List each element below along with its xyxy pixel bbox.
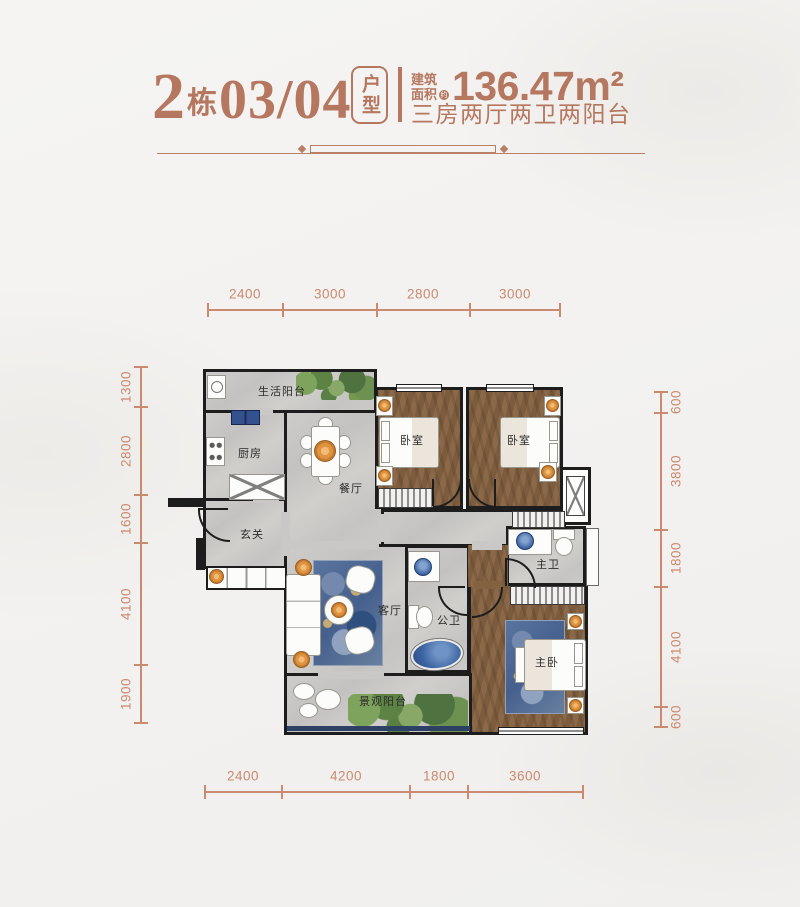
dim-tick [469, 303, 471, 317]
side-table [295, 559, 312, 576]
balcony-stone [315, 689, 341, 710]
dim-label: 600 [669, 390, 684, 414]
foyer-plant-icon [209, 569, 224, 584]
decor-diamond-left [298, 145, 306, 153]
toilet-icon [416, 606, 433, 628]
building-unit: 栋 [187, 78, 217, 122]
pillow [549, 443, 558, 463]
dim-tick [654, 412, 668, 414]
room-label-dining: 餐厅 [339, 480, 363, 496]
layout-summary: 三房两厅两卫两阳台 [411, 103, 632, 126]
dim-label: 1600 [119, 503, 134, 535]
dim-label: 600 [669, 705, 684, 729]
kitchen-appliance-icon [231, 410, 260, 425]
dining-table-decor [314, 440, 336, 462]
kitchen-cabinet-icon [229, 474, 285, 500]
public-bath-door-leaf [438, 586, 465, 588]
dim-tick [134, 406, 148, 408]
dim-label: 2400 [227, 769, 259, 784]
dim-tick [134, 722, 148, 724]
sink-icon [414, 558, 432, 576]
dim-label: 2400 [229, 287, 261, 302]
type-badge-label: 户型 [356, 74, 383, 116]
dim-tick [204, 785, 206, 799]
master-bath-door-leaf [505, 558, 507, 586]
opening [378, 514, 390, 542]
room-label-kitchen: 厨房 [238, 445, 262, 461]
room-label-master-bathroom: 主卫 [536, 556, 560, 572]
plants-icon [296, 372, 374, 400]
wardrobe [378, 488, 434, 508]
stove-icon [206, 437, 225, 466]
dim-label: 3800 [669, 455, 684, 487]
pillow [574, 643, 583, 664]
opening [472, 541, 502, 550]
area-approx-mark: 约 [439, 90, 449, 100]
bedroom-left-window [396, 384, 442, 392]
nightstand-plant-icon [378, 469, 391, 482]
master-bedroom-window [498, 727, 584, 735]
room-label-foyer: 玄关 [240, 526, 264, 542]
dim-tick [654, 726, 668, 728]
dim-tick [207, 303, 209, 317]
ac-ledge [586, 528, 599, 586]
dim-tick [654, 391, 668, 393]
dim-tick [582, 785, 584, 799]
dim-label: 4100 [669, 631, 684, 663]
decor-line [157, 153, 645, 154]
pillow [574, 666, 583, 687]
area-label: 建筑面积 [411, 72, 439, 103]
toilet-icon [555, 537, 573, 556]
washer-icon [207, 375, 226, 399]
dim-label: 3600 [509, 769, 541, 784]
dim-label: 3000 [499, 287, 531, 302]
nightstand-plant-icon [541, 465, 555, 479]
dim-tick [467, 785, 469, 799]
dim-tick [134, 494, 148, 496]
dim-label: 3000 [314, 287, 346, 302]
page-title: 2 栋 03/04 [152, 62, 352, 124]
dim-top-line [208, 309, 560, 311]
dim-right-line [660, 392, 662, 727]
dim-tick [654, 529, 668, 531]
coffee-table-decor [331, 602, 347, 618]
dim-tick [281, 785, 283, 799]
dim-tick [376, 303, 378, 317]
bedroom-left-door-leaf [432, 479, 434, 506]
room-label-public-bathroom: 公卫 [437, 612, 461, 628]
bedroom-right-door-leaf [494, 479, 496, 506]
dim-label: 4200 [330, 769, 362, 784]
balcony-stone [299, 703, 318, 718]
dim-bottom-line [205, 791, 583, 793]
header-divider [398, 67, 402, 122]
dim-tick [134, 542, 148, 544]
balcony-stone [293, 683, 315, 700]
dim-label: 1900 [119, 678, 134, 710]
floorplan-page: 2 栋 03/04 户型 建筑面积 约 136.47m² 三房两厅两卫两阳台 2… [0, 0, 800, 907]
type-badge: 户型 [351, 66, 388, 124]
dim-label: 2800 [119, 435, 134, 467]
opening [318, 671, 384, 679]
entry-wall [196, 538, 205, 570]
dim-tick [559, 303, 561, 317]
dim-tick [409, 785, 411, 799]
pillow [381, 443, 390, 463]
nightstand-plant-icon [569, 615, 582, 628]
bed-bench [515, 647, 525, 683]
pillow [381, 421, 390, 441]
sofa [286, 574, 321, 656]
room-label-bedroom-right: 卧室 [507, 432, 531, 448]
entry-door-leaf [198, 508, 228, 510]
dim-tick [134, 664, 148, 666]
wardrobe [510, 586, 585, 605]
dim-label: 2800 [407, 287, 439, 302]
dim-tick [654, 586, 668, 588]
shaft-x-icon [566, 476, 585, 516]
opening [287, 541, 379, 550]
side-table [293, 651, 310, 668]
decor-box [310, 145, 496, 153]
room-label-life-balcony: 生活阳台 [258, 383, 306, 399]
decor-diamond-right [500, 145, 508, 153]
room-label-view-balcony: 景观阳台 [359, 693, 407, 709]
unit-numbers: 03/04 [219, 78, 352, 124]
dim-label: 1800 [669, 542, 684, 574]
balcony-railing [287, 726, 470, 731]
dim-tick [134, 366, 148, 368]
pillow [549, 421, 558, 441]
dim-left-line [140, 367, 142, 723]
room-label-master-bedroom: 主卧 [535, 654, 559, 670]
nightstand-plant-icon [378, 399, 391, 412]
bedroom-right-window [486, 384, 534, 392]
dim-label: 1800 [423, 769, 455, 784]
wardrobe [512, 511, 565, 528]
entry-wall [168, 498, 206, 507]
nightstand-plant-icon [569, 699, 582, 712]
sink-icon [516, 532, 534, 550]
nightstand-plant-icon [546, 399, 559, 412]
dim-tick [654, 706, 668, 708]
dim-label: 1300 [119, 371, 134, 403]
dim-label: 4100 [119, 588, 134, 620]
room-label-bedroom-left: 卧室 [400, 432, 424, 448]
room-label-living: 客厅 [378, 602, 402, 618]
dim-tick [282, 303, 284, 317]
building-number: 2 [152, 70, 185, 124]
